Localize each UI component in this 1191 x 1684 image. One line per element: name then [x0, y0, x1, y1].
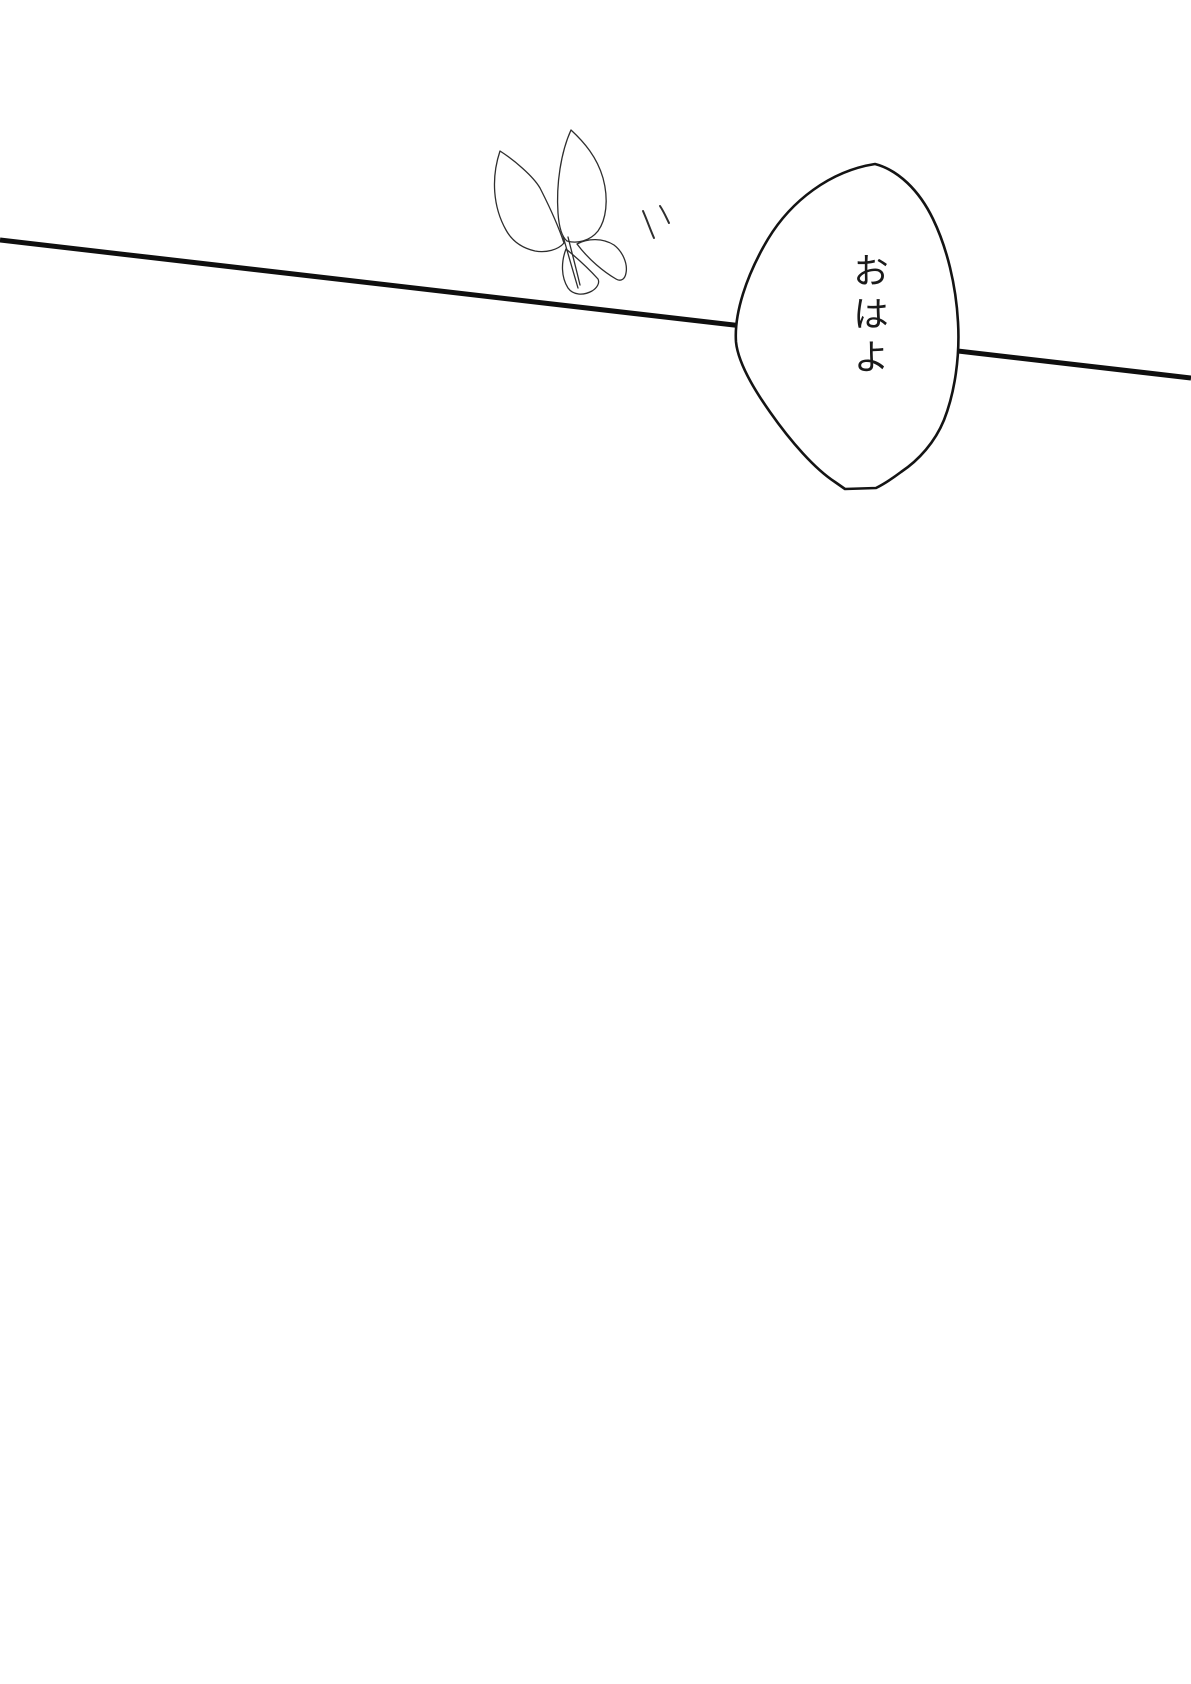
flutter-marks-icon: [643, 206, 669, 238]
butterfly-lower-left-tail: [562, 249, 598, 294]
flutter-mark-right: [660, 206, 669, 223]
butterfly-left-upper-wing: [494, 151, 564, 252]
butterfly-right-upper-wing: [558, 130, 607, 242]
butterfly-body-stroke-1: [563, 236, 578, 288]
speech-bubble-text: おはよ: [846, 252, 890, 402]
butterfly-lower-right-wing: [577, 240, 626, 281]
butterfly-sketch-icon: [494, 130, 626, 294]
flutter-mark-left: [643, 211, 654, 238]
horizon-line: [0, 240, 1191, 378]
manga-page: おはよ: [0, 0, 1191, 1684]
sketch-art-layer: [0, 0, 1191, 1684]
